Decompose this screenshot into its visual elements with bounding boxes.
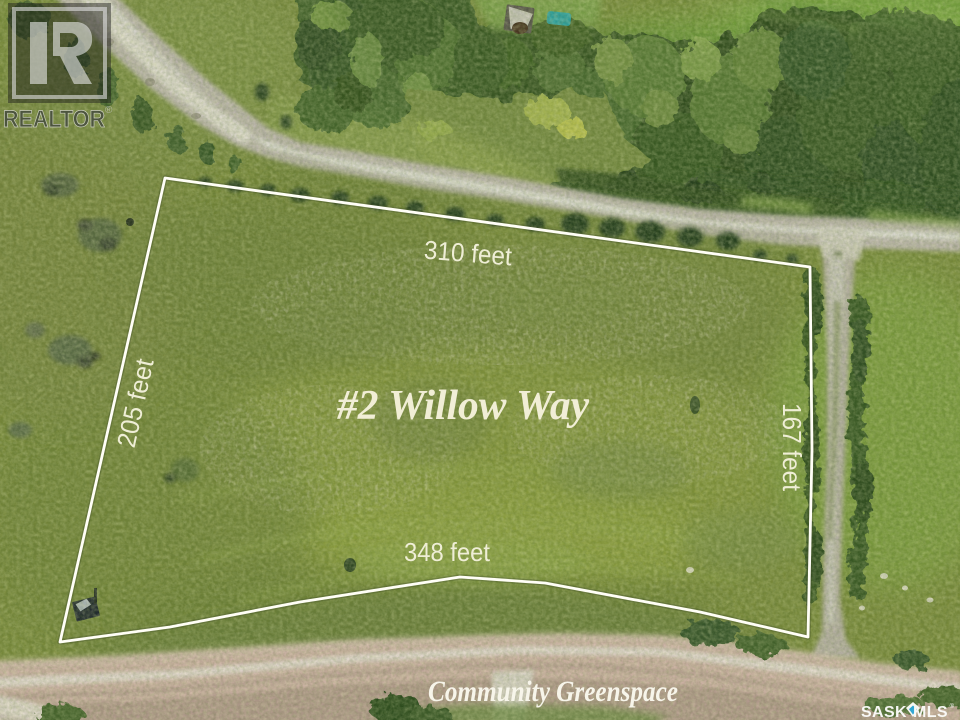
svg-text:#2 Willow Way: #2 Willow Way xyxy=(336,383,589,429)
svg-text:®: ® xyxy=(950,703,955,710)
svg-text:348 feet: 348 feet xyxy=(404,537,491,567)
svg-text:SASK: SASK xyxy=(861,704,907,720)
svg-text:MLS: MLS xyxy=(913,704,948,720)
svg-text:REALTOR: REALTOR xyxy=(3,106,105,133)
svg-text:®: ® xyxy=(105,105,113,116)
svg-text:Community Greenspace: Community Greenspace xyxy=(428,675,678,708)
svg-text:167 feet: 167 feet xyxy=(777,403,807,492)
